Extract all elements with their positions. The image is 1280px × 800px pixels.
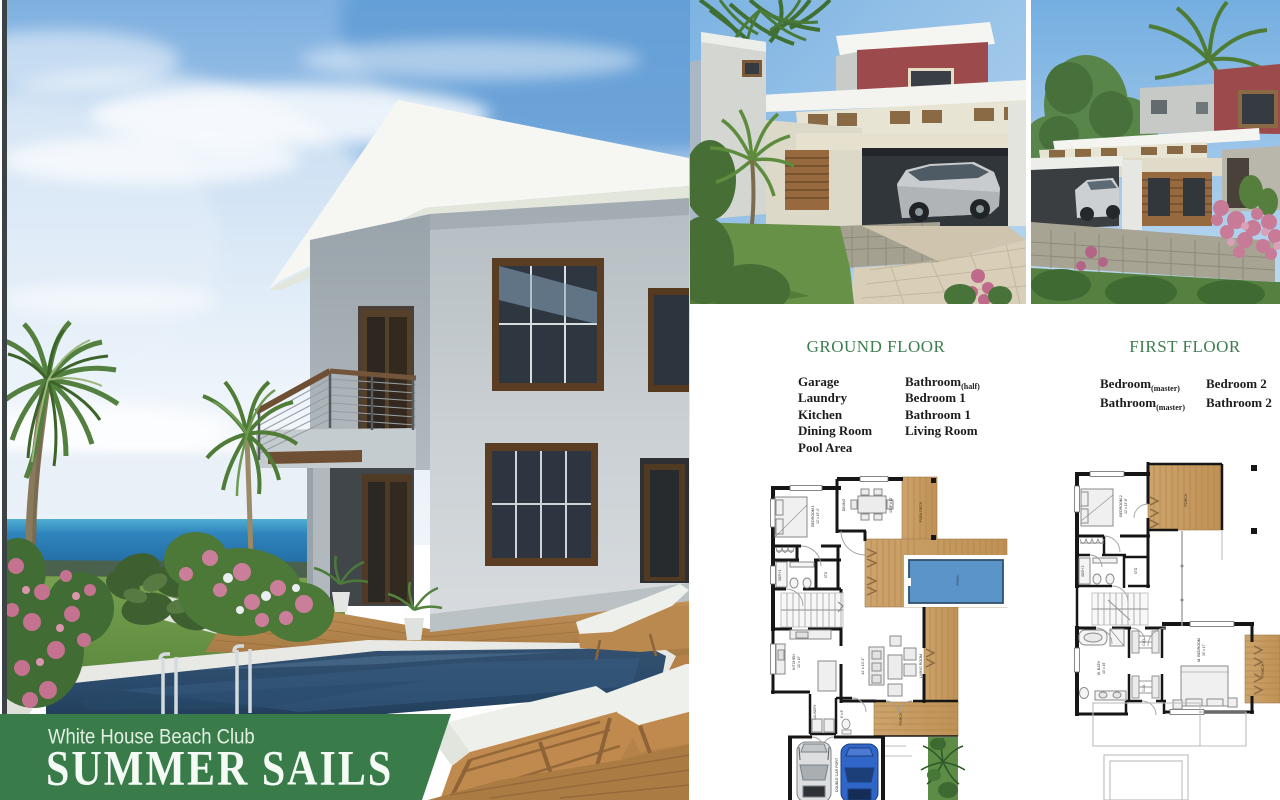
svg-text:STO: STO	[1134, 567, 1138, 574]
svg-text:BATH 1: BATH 1	[778, 569, 782, 580]
svg-text:10' x 15': 10' x 15'	[797, 656, 801, 668]
svg-text:POOL DECK: POOL DECK	[919, 501, 923, 522]
svg-text:CLO.: CLO.	[1142, 684, 1146, 692]
svg-text:DOUBLE CAR PORT: DOUBLE CAR PORT	[835, 757, 839, 792]
svg-text:12' x 13'-8": 12' x 13'-8"	[1124, 498, 1128, 514]
svg-text:12' x 13'-4": 12' x 13'-4"	[816, 508, 820, 524]
svg-text:10' x 16': 10' x 16'	[1102, 662, 1106, 674]
svg-text:6' x 8': 6' x 8'	[840, 710, 844, 719]
svg-text:LAUNDRY: LAUNDRY	[813, 704, 817, 720]
svg-text:PORCH: PORCH	[899, 712, 903, 725]
svg-text:PORCH: PORCH	[1184, 493, 1188, 506]
svg-text:DINING: DINING	[842, 499, 846, 512]
svg-text:15' x 17': 15' x 17'	[1202, 644, 1206, 656]
svg-text:STO: STO	[824, 571, 828, 578]
svg-text:KITCHEN: KITCHEN	[792, 654, 796, 670]
svg-text:PORCH: PORCH	[1261, 663, 1265, 676]
svg-text:W. BATH: W. BATH	[1097, 660, 1101, 675]
svg-text:13'-8" x 12': 13'-8" x 12'	[889, 497, 893, 513]
svg-text:POOL: POOL	[955, 574, 960, 586]
svg-text:14' x 13'-4": 14' x 13'-4"	[861, 656, 865, 674]
svg-text:BEDROOM 2: BEDROOM 2	[1119, 495, 1123, 517]
svg-text:M. BEDROOM: M. BEDROOM	[1197, 638, 1201, 662]
svg-text:LIVING ROOM: LIVING ROOM	[919, 654, 923, 678]
svg-text:BATH 2: BATH 2	[1081, 565, 1085, 576]
svg-text:BEDROOM 1: BEDROOM 1	[811, 505, 815, 527]
